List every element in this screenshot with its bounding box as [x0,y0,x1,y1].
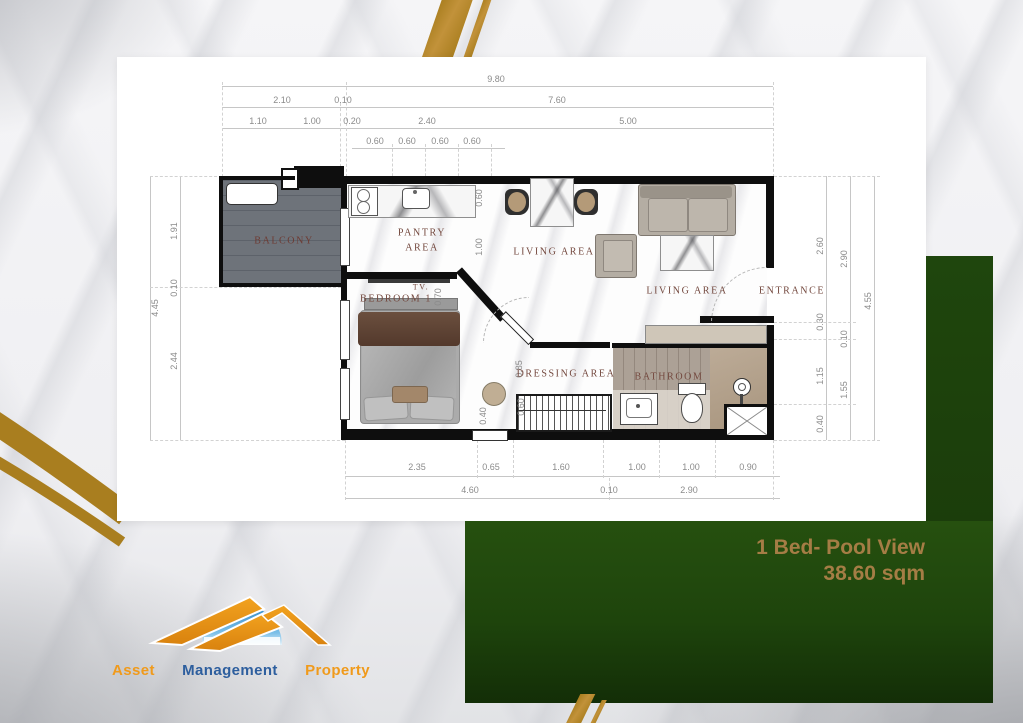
room-label: PANTRY [398,228,446,239]
extension-line [345,440,346,500]
dimension-label: 0.60 [474,189,484,207]
sink-faucet-icon [413,190,417,194]
dimension-label: 0.65 [482,462,500,472]
extension-line [603,440,604,478]
shower-head-dot [738,383,746,391]
room-label: BATHROOM [635,372,704,383]
dimension-label: 0.60 [431,136,449,146]
logo-wordmark: AssetManagementProperty [112,662,370,679]
extension-line [773,82,774,177]
extension-line [150,440,345,441]
console-cabinet [645,325,767,344]
logo-word: Property [305,662,370,679]
room-label: DRESSING AREA [517,369,616,380]
dining-table [530,178,574,227]
extension-line [715,440,716,478]
dimension-label: 2.10 [273,95,291,105]
dimension-label: 0.60 [366,136,384,146]
dimension-label: 2.60 [815,237,825,255]
ac-unit [226,183,278,205]
dimension-label: 2.40 [418,116,436,126]
extension-line [773,440,774,500]
sofa-cushion [688,198,728,232]
wall-dressing-top [530,342,610,348]
bedroom-window [340,300,350,360]
dimension-label: 2.90 [680,485,698,495]
room-label: BEDROOM 1 [360,294,432,305]
sofa-cushion [648,198,688,232]
dimension-label: 0.30 [815,313,825,331]
dimension-label: 0.40 [478,407,488,425]
dimension-label: 0.20 [343,116,361,126]
dimension-label: 5.00 [619,116,637,126]
bed-blanket [358,312,460,346]
extension-line [774,404,856,405]
dim-line [222,107,773,108]
toilet-bowl [681,393,703,423]
room-label: BALCONY [254,236,314,247]
armchair-seat [603,240,633,272]
dressing-stool [482,382,506,406]
balcony-wall-top [219,176,295,180]
vanity-basin-icon [626,398,652,418]
dimension-label: 1.55 [839,381,849,399]
unit-info-banner: 1 Bed- Pool View 38.60 sqm [465,521,993,703]
page: 9.802.100.107.601.101.000.202.405.000.60… [0,0,1023,723]
dimension-label: 2.90 [839,250,849,268]
shaft-x-icon [727,407,767,435]
dining-chair-seat [508,192,526,212]
mountain-sun-icon [112,583,370,653]
dimension-label: 4.55 [863,292,873,310]
dimension-label: 0.10 [169,279,179,297]
dimension-label: 1.15 [815,367,825,385]
wall-bedroom-top [345,272,457,279]
room-label: ENTRANCE [759,286,825,297]
balcony-wall-bottom [219,283,343,287]
dimension-label: 1.00 [303,116,321,126]
dim-line [352,148,505,149]
extension-line [774,176,880,177]
dimension-label: 2.44 [169,352,179,370]
coffee-table [660,235,714,271]
room-label: AREA [405,243,439,254]
balcony-service-block [294,166,344,188]
extension-line [774,440,880,441]
dimension-label: 1.91 [169,222,179,240]
dimension-label: 1.00 [474,238,484,256]
dim-line [826,176,827,440]
dining-chair-seat [577,192,595,212]
extension-line [513,440,514,478]
room-label: LIVING AREA [513,247,594,258]
dim-line [874,176,875,440]
dim-line [180,176,181,440]
dimension-label: 1.10 [249,116,267,126]
dimension-label: 0.60 [398,136,416,146]
extension-line [659,440,660,478]
dim-line [850,176,851,440]
dimension-label: 0.60 [463,136,481,146]
dimension-label: 9.80 [487,74,505,84]
company-logo: AssetManagementProperty [112,583,370,679]
balcony-wall-left [219,177,223,286]
logo-word: Management [182,662,278,679]
bedroom-window [340,368,350,420]
shaft [724,404,770,438]
dimension-label: 0.10 [839,330,849,348]
room-label: TV. [413,283,429,292]
wardrobe [516,394,612,432]
dimension-label: 0.60 [516,398,526,416]
room-label: LIVING AREA [646,286,727,297]
unit-area-text: 38.60 sqm [465,561,925,587]
logo-word: Asset [112,662,155,679]
wall-bottom-doorframe [472,430,508,441]
sofa-back [640,186,732,198]
dimension-label: 0.90 [739,462,757,472]
dimension-label: 4.45 [150,299,160,317]
dimension-label: 0.40 [815,415,825,433]
dimension-label: 4.60 [461,485,479,495]
vanity-faucet-icon [636,404,640,408]
extension-line [477,440,478,478]
wall-right-upper [766,176,774,268]
dimension-label: 0.70 [433,288,443,306]
tv-console [368,279,450,283]
wardrobe-rail [518,410,606,411]
dimension-label: 1.00 [628,462,646,472]
extension-line [150,176,222,177]
dim-line [222,128,773,129]
dimension-label: 0.10 [334,95,352,105]
dim-line [222,86,773,87]
dimension-label: 1.00 [682,462,700,472]
dimension-label: 2.35 [408,462,426,472]
extension-line [222,82,223,177]
stove-burner-icon [357,201,370,214]
dimension-label: 1.60 [552,462,570,472]
dim-line [345,498,780,499]
bed-accent-pillow [392,386,428,403]
dimension-label: 0.10 [600,485,618,495]
unit-type-text: 1 Bed- Pool View [465,535,925,561]
dimension-label: 7.60 [548,95,566,105]
